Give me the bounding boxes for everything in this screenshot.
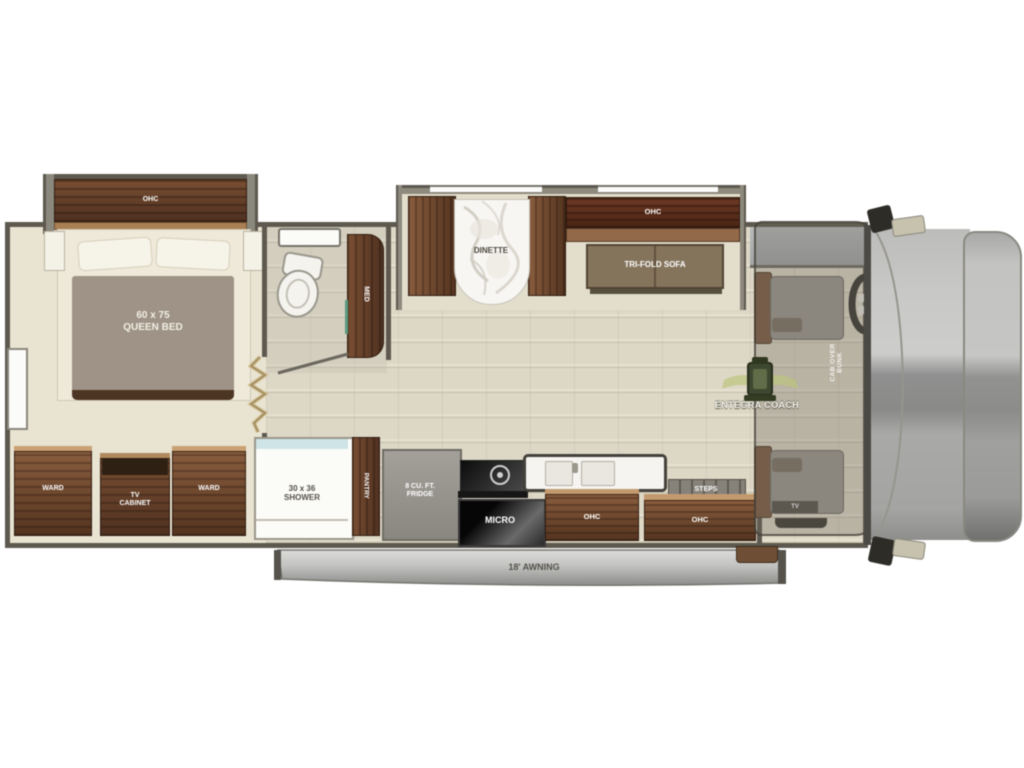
svg-text:18' AWNING: 18' AWNING [508, 562, 559, 572]
